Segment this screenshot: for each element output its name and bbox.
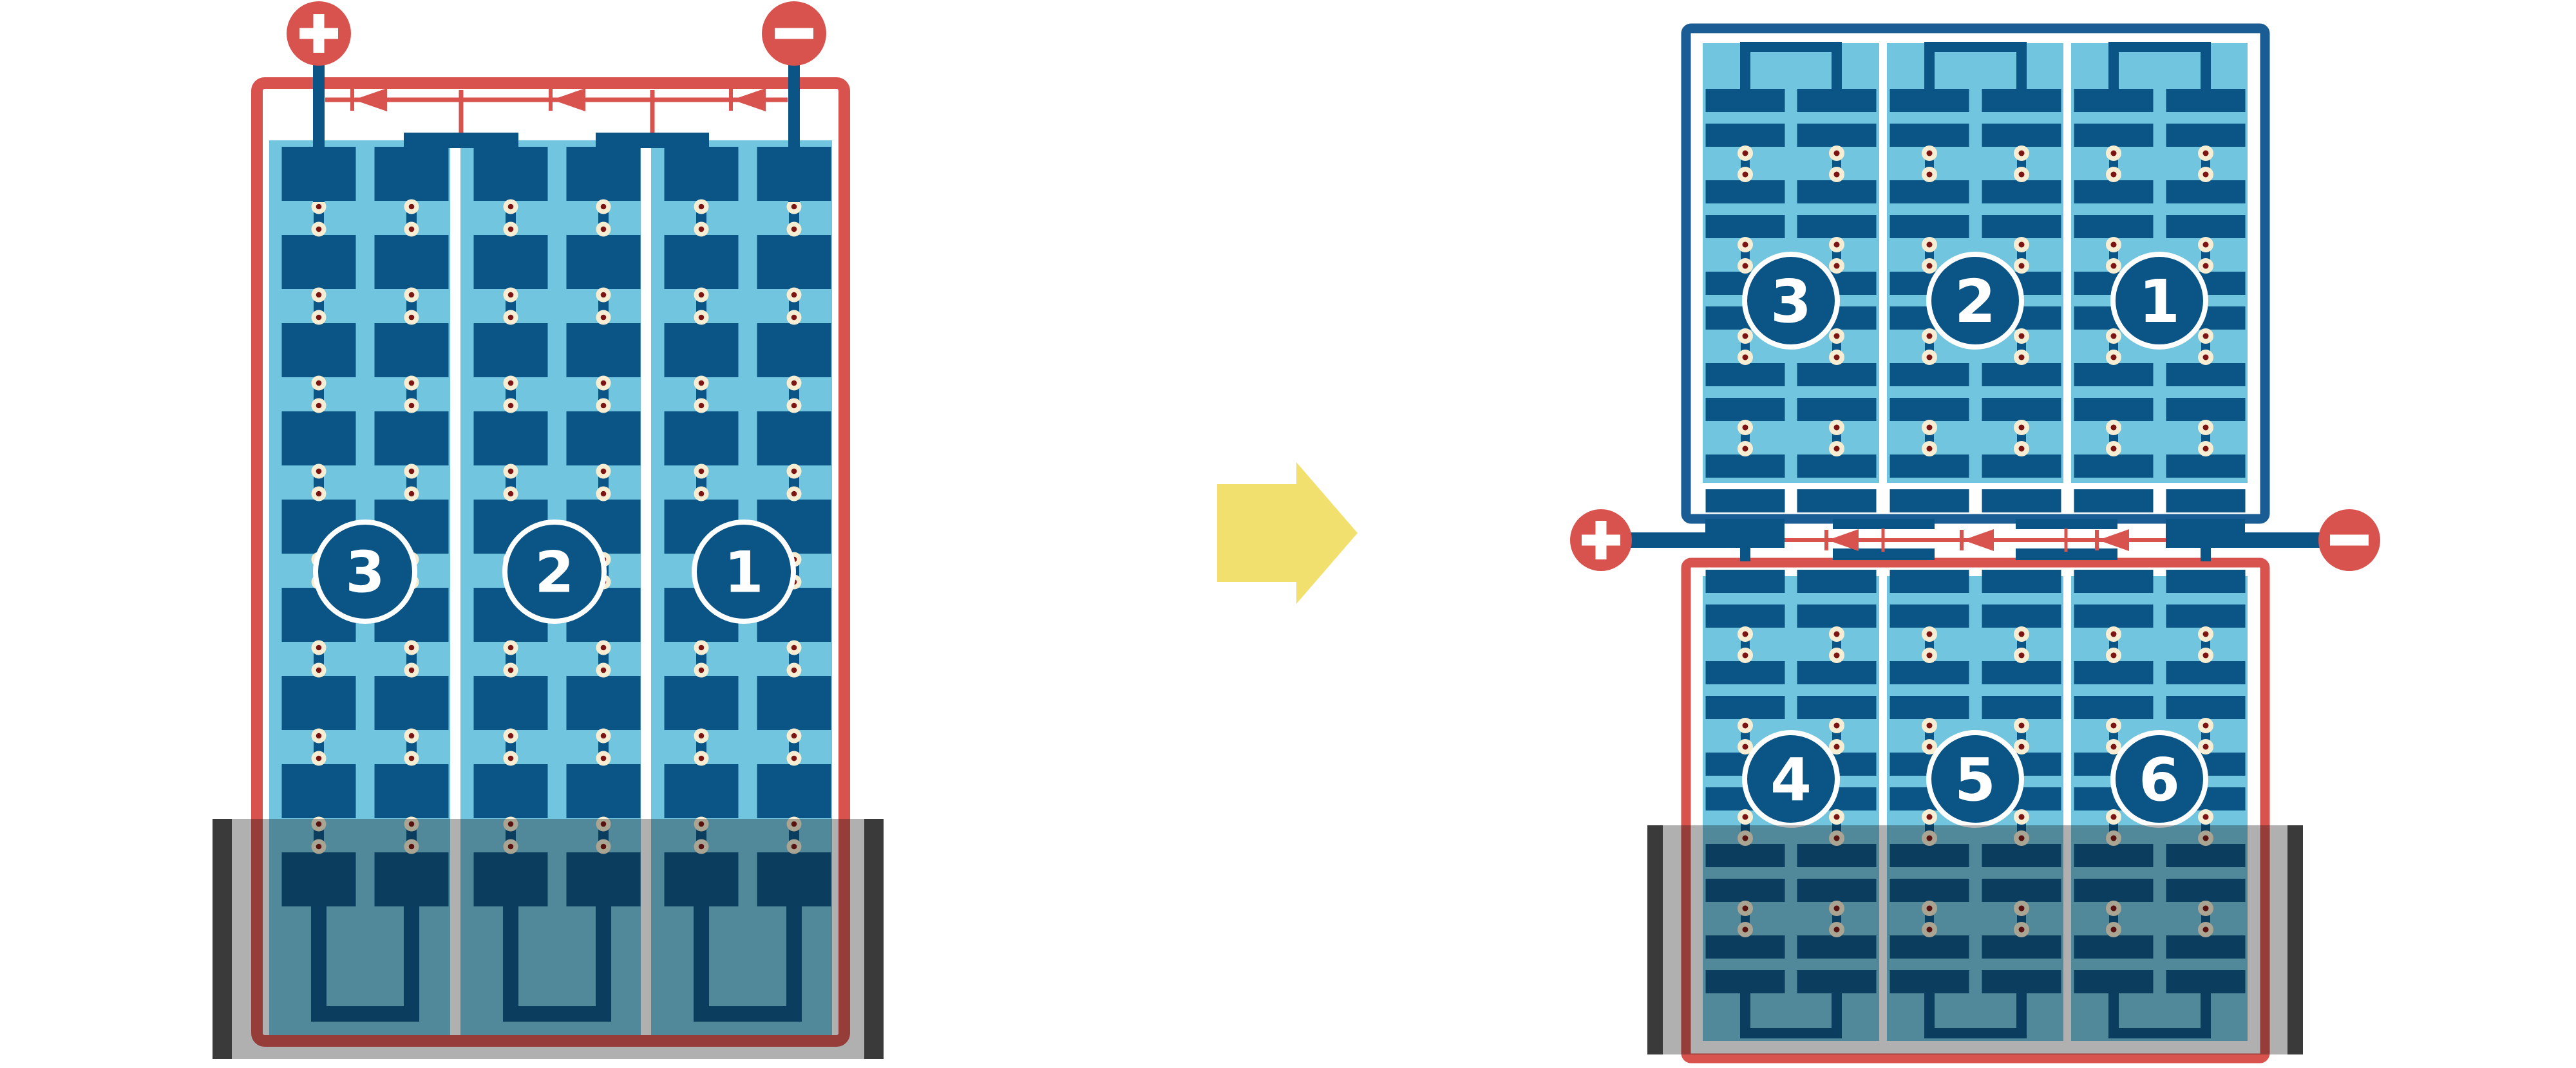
rivet-center — [1743, 446, 1748, 452]
rivet-center — [316, 227, 322, 232]
battery-plate — [665, 764, 739, 818]
rivet-center — [791, 227, 797, 232]
holder-end-cap — [1647, 825, 1663, 1054]
battery-plate — [2074, 604, 2154, 628]
rivet-center — [699, 292, 705, 298]
battery-plate — [567, 411, 641, 465]
rivet-center — [1927, 333, 1933, 339]
inter-cell-tab — [2016, 519, 2117, 529]
battery-plate — [1706, 89, 1785, 112]
rivet-center — [1834, 242, 1840, 248]
rivet-center — [791, 292, 797, 298]
battery-plate — [1706, 661, 1785, 684]
battery-plate — [2074, 398, 2154, 421]
holder-end-cap — [864, 819, 884, 1059]
battery-plate — [1890, 215, 1969, 238]
rivet-center — [699, 645, 705, 651]
rivet-center — [2203, 355, 2209, 361]
rivet-center — [508, 315, 514, 321]
rivet-center — [2019, 355, 2025, 361]
rivet-center — [791, 204, 797, 210]
rivet-center — [2019, 814, 2025, 820]
battery-plate — [2074, 454, 2154, 478]
rivet-center — [2111, 425, 2117, 431]
rivet-center — [2203, 446, 2209, 452]
left-battery: 321 — [213, 1, 884, 1059]
rivet-center — [1743, 172, 1748, 178]
rivet-center — [601, 668, 607, 673]
rivet-center — [2019, 744, 2025, 750]
rivet-center — [699, 668, 705, 673]
rivet-center — [1927, 172, 1933, 178]
battery-plate — [1982, 604, 2061, 628]
battery-plate — [665, 235, 739, 289]
sign-bar-vertical — [1596, 521, 1607, 559]
rivet-center — [1927, 446, 1933, 452]
rivet-center — [508, 668, 514, 673]
battery-plate — [2166, 215, 2246, 238]
rivet-center — [508, 733, 514, 739]
battery-plate — [2074, 661, 2154, 684]
rivet-center — [316, 204, 322, 210]
battery-plate — [474, 147, 548, 201]
battery-plate — [1982, 489, 2061, 512]
rivet-center — [2111, 151, 2117, 156]
rivet-center — [791, 403, 797, 409]
diagram-svg: 321321456 — [0, 0, 2576, 1068]
rivet-center — [409, 733, 415, 739]
rivet-center — [316, 403, 322, 409]
rivet-center — [2203, 333, 2209, 339]
cell-number-label: 2 — [1955, 267, 1996, 336]
battery-plate — [2074, 215, 2154, 238]
battery-plate — [2074, 570, 2154, 593]
battery-plate — [567, 147, 641, 201]
battery-plate — [1890, 570, 1969, 593]
battery-plate — [757, 764, 831, 818]
battery-plate — [2074, 124, 2154, 147]
battery-plate — [1982, 363, 2061, 386]
current-arrowhead-left — [354, 88, 387, 111]
rivet-center — [2111, 242, 2117, 248]
rivet-center — [699, 733, 705, 739]
battery-plate — [375, 323, 449, 377]
rivet-center — [2019, 446, 2025, 452]
post-to-top-battery — [1705, 519, 1785, 548]
transform-arrow — [1217, 462, 1358, 604]
rivet-center — [1927, 632, 1933, 637]
rivet-center — [508, 469, 514, 474]
rivet-center — [508, 380, 514, 386]
cell-number-label: 1 — [2139, 267, 2180, 336]
battery-plate — [1706, 604, 1785, 628]
rivet-center — [1834, 446, 1840, 452]
battery-plate — [1890, 124, 1969, 147]
rivet-center — [1743, 814, 1748, 820]
rivet-center — [2111, 446, 2117, 452]
holder-end-cap — [2287, 825, 2303, 1054]
sign-bar-horizontal — [2330, 535, 2369, 546]
rivet-center — [1834, 263, 1840, 269]
battery-plate — [375, 411, 449, 465]
battery-plate — [474, 764, 548, 818]
post-to-top-battery — [2166, 519, 2245, 548]
battery-plate — [1797, 398, 1877, 421]
rivet-center — [316, 380, 322, 386]
rivet-center — [2203, 814, 2209, 820]
battery-plate — [474, 411, 548, 465]
battery-plate — [375, 764, 449, 818]
rivet-center — [791, 469, 797, 474]
battery-plate — [1890, 604, 1969, 628]
rivet-center — [791, 733, 797, 739]
battery-plate — [1890, 363, 1969, 386]
cell-number-label: 6 — [2139, 745, 2180, 814]
rivet-center — [1743, 242, 1748, 248]
battery-plate — [2166, 696, 2246, 719]
minus-icon — [775, 28, 813, 39]
battery-plate — [1890, 180, 1969, 203]
current-arrowhead-left — [732, 88, 766, 111]
negative-post — [788, 63, 800, 202]
rivet-center — [2019, 425, 2025, 431]
rivet-center — [1927, 814, 1933, 820]
battery-plate — [1797, 363, 1877, 386]
rivet-center — [409, 380, 415, 386]
rivet-center — [601, 403, 607, 409]
battery-plate — [1706, 124, 1785, 147]
battery-plate — [1706, 363, 1785, 386]
rivet-center — [1927, 744, 1933, 750]
battery-plate — [2074, 89, 2154, 112]
rivet-center — [316, 668, 322, 673]
battery-plate — [282, 764, 356, 818]
rivet-center — [1834, 814, 1840, 820]
battery-plate — [1982, 180, 2061, 203]
rivet-center — [2111, 333, 2117, 339]
rivet-center — [699, 491, 705, 497]
rivet-center — [409, 756, 415, 762]
rivet-center — [508, 292, 514, 298]
rivet-center — [699, 227, 705, 232]
rivet-center — [2019, 263, 2025, 269]
battery-plate — [1797, 89, 1877, 112]
rivet-center — [409, 292, 415, 298]
rivet-center — [508, 403, 514, 409]
battery-plate — [282, 411, 356, 465]
rivet-center — [1927, 723, 1933, 729]
battery-plate — [2166, 661, 2246, 684]
positive-post — [313, 63, 325, 202]
rivet-center — [699, 756, 705, 762]
battery-plate — [665, 411, 739, 465]
rivet-center — [2019, 653, 2025, 659]
battery-plate — [375, 147, 449, 201]
battery-plate — [1890, 489, 1969, 512]
battery-plate — [665, 147, 739, 201]
battery-plate — [1982, 89, 2061, 112]
rivet-center — [2203, 723, 2209, 729]
rivet-center — [601, 491, 607, 497]
rivet-center — [508, 491, 514, 497]
battery-plate — [1982, 661, 2061, 684]
rivet-center — [508, 756, 514, 762]
inter-cell-tab — [1833, 519, 1935, 529]
rivet-center — [2111, 744, 2117, 750]
battery-plate — [567, 764, 641, 818]
series-wire — [325, 88, 788, 138]
rivet-center — [1743, 632, 1748, 637]
battery-plate — [1797, 454, 1877, 478]
arrow-head-right — [1296, 462, 1358, 604]
rivet-center — [1743, 653, 1748, 659]
rivet-center — [508, 645, 514, 651]
battery-plate — [665, 676, 739, 730]
battery-plate — [2074, 363, 2154, 386]
battery-plate — [282, 235, 356, 289]
sign-bar-vertical — [314, 14, 325, 53]
rivet-center — [1834, 653, 1840, 659]
battery-plate — [1982, 454, 2061, 478]
battery-rewiring-illustration: 321321456 — [0, 0, 2576, 1068]
rivet-center — [2111, 263, 2117, 269]
battery-plate — [757, 411, 831, 465]
rivet-center — [1927, 242, 1933, 248]
battery-plate — [757, 235, 831, 289]
rivet-center — [1834, 632, 1840, 637]
battery-plate — [2166, 489, 2246, 512]
rivet-center — [1834, 723, 1840, 729]
post-to-bottom-battery — [1740, 547, 1750, 561]
rivet-center — [699, 204, 705, 210]
rivet-center — [316, 315, 322, 321]
rivet-center — [1834, 355, 1840, 361]
battery-plate — [1797, 489, 1877, 512]
rivet-center — [1834, 172, 1840, 178]
rivet-center — [2111, 355, 2117, 361]
rivet-center — [2019, 172, 2025, 178]
battery-plate — [474, 323, 548, 377]
rivet-center — [791, 491, 797, 497]
battery-plate — [1890, 398, 1969, 421]
cell-number-label: 3 — [1770, 267, 1812, 336]
battery-plate — [1797, 696, 1877, 719]
rivet-center — [508, 227, 514, 232]
rivet-center — [409, 469, 415, 474]
battery-plate — [757, 676, 831, 730]
rivet-center — [601, 380, 607, 386]
battery-plate — [567, 323, 641, 377]
battery-plate — [1706, 570, 1785, 593]
battery-plate — [2166, 570, 2246, 593]
battery-plate — [567, 676, 641, 730]
rivet-center — [1743, 151, 1748, 156]
holder-shade — [1647, 825, 2303, 1054]
battery-plate — [2074, 696, 2154, 719]
rivet-center — [409, 668, 415, 673]
rivet-center — [2203, 263, 2209, 269]
rivet-center — [1743, 263, 1748, 269]
rivet-center — [1743, 744, 1748, 750]
rivet-center — [316, 645, 322, 651]
battery-plate — [757, 323, 831, 377]
battery-plate — [1982, 696, 2061, 719]
rivet-center — [316, 469, 322, 474]
battery-plate — [1982, 570, 2061, 593]
battery-plate — [1982, 398, 2061, 421]
battery-plate — [1982, 215, 2061, 238]
battery-plate — [375, 676, 449, 730]
rivet-center — [2203, 632, 2209, 637]
rivet-center — [2111, 653, 2117, 659]
battery-plate — [1890, 454, 1969, 478]
battery-plate — [2166, 604, 2246, 628]
rivet-center — [2019, 333, 2025, 339]
battery-plate — [2166, 89, 2246, 112]
rivet-center — [1743, 333, 1748, 339]
mounting-holder — [213, 819, 884, 1059]
rivet-center — [601, 733, 607, 739]
battery-plate — [2166, 454, 2246, 478]
rivet-center — [409, 645, 415, 651]
battery-plate — [1706, 696, 1785, 719]
rivet-center — [791, 668, 797, 673]
rivet-center — [316, 292, 322, 298]
battery-plate — [1706, 215, 1785, 238]
holder-end-cap — [213, 819, 232, 1059]
rivet-center — [601, 756, 607, 762]
rivet-center — [699, 469, 705, 474]
cell-number-label: 2 — [535, 539, 574, 606]
current-arrowhead-left — [552, 88, 585, 111]
rivet-center — [2203, 242, 2209, 248]
battery-plate — [1982, 124, 2061, 147]
rivet-center — [699, 380, 705, 386]
rivet-center — [1743, 425, 1748, 431]
rivet-center — [2019, 151, 2025, 156]
battery-plate — [1706, 454, 1785, 478]
rivet-center — [1743, 355, 1748, 361]
rivet-center — [409, 491, 415, 497]
rivet-center — [2019, 723, 2025, 729]
rivet-center — [601, 292, 607, 298]
rivet-center — [2111, 814, 2117, 820]
battery-plate — [2166, 124, 2246, 147]
rivet-center — [2203, 744, 2209, 750]
current-arrowhead-left — [2098, 529, 2129, 551]
rivet-center — [409, 315, 415, 321]
battery-plate — [1797, 124, 1877, 147]
rivet-center — [2111, 632, 2117, 637]
rivet-center — [316, 733, 322, 739]
current-arrowhead-left — [1963, 529, 1994, 551]
rivet-center — [2203, 425, 2209, 431]
battery-plate — [1706, 180, 1785, 203]
right-top-battery: 321 — [1686, 28, 2265, 529]
rivet-center — [791, 380, 797, 386]
rivet-center — [1743, 723, 1748, 729]
battery-plate — [665, 323, 739, 377]
current-arrowhead-left — [1828, 529, 1859, 551]
post-to-bottom-battery — [2201, 547, 2211, 561]
rivet-center — [1927, 653, 1933, 659]
cell-number-label: 1 — [724, 539, 763, 606]
arrow-shaft — [1217, 484, 1296, 582]
rivet-center — [316, 491, 322, 497]
rivet-center — [2111, 723, 2117, 729]
rivet-center — [1834, 425, 1840, 431]
rivet-center — [316, 756, 322, 762]
rivet-center — [791, 645, 797, 651]
battery-plate — [282, 323, 356, 377]
rivet-center — [1927, 425, 1933, 431]
rivet-center — [1927, 151, 1933, 156]
rivet-center — [2019, 242, 2025, 248]
rivet-center — [1834, 151, 1840, 156]
battery-plate — [1797, 215, 1877, 238]
rivet-center — [1927, 355, 1933, 361]
holder-shade — [213, 819, 884, 1059]
rivet-center — [2203, 172, 2209, 178]
rivet-center — [601, 204, 607, 210]
rivet-center — [791, 756, 797, 762]
rivet-center — [409, 403, 415, 409]
sign-bar-horizontal — [775, 28, 813, 39]
battery-plate — [1797, 604, 1877, 628]
cell-number-label: 4 — [1770, 745, 1812, 814]
rivet-center — [601, 469, 607, 474]
rivet-center — [2019, 632, 2025, 637]
battery-plate — [2166, 180, 2246, 203]
rivet-center — [2203, 151, 2209, 156]
battery-plate — [2074, 489, 2154, 512]
rivet-center — [1927, 263, 1933, 269]
battery-plate — [474, 676, 548, 730]
rivet-center — [601, 315, 607, 321]
battery-plate — [375, 235, 449, 289]
cell-number-label: 5 — [1955, 745, 1996, 814]
rivet-center — [601, 227, 607, 232]
cell-number-label: 3 — [345, 539, 384, 606]
battery-plate — [1797, 570, 1877, 593]
rivet-center — [2111, 172, 2117, 178]
battery-plate — [1797, 661, 1877, 684]
rivet-center — [409, 204, 415, 210]
rivet-center — [2203, 653, 2209, 659]
battery-plate — [1890, 661, 1969, 684]
rivet-center — [699, 403, 705, 409]
rivet-center — [601, 645, 607, 651]
rivet-center — [409, 227, 415, 232]
battery-plate — [474, 235, 548, 289]
rivet-center — [508, 204, 514, 210]
battery-plate — [1797, 180, 1877, 203]
battery-plate — [1890, 89, 1969, 112]
battery-plate — [2166, 398, 2246, 421]
battery-plate — [567, 235, 641, 289]
battery-plate — [2166, 363, 2246, 386]
rivet-center — [1834, 333, 1840, 339]
battery-plate — [282, 676, 356, 730]
battery-plate — [1890, 696, 1969, 719]
battery-plate — [2074, 180, 2154, 203]
rivet-center — [699, 315, 705, 321]
minus-icon — [2330, 535, 2369, 546]
mounting-holder — [1647, 825, 2303, 1054]
battery-plate — [1706, 398, 1785, 421]
battery-plate — [1706, 489, 1785, 512]
rivet-center — [1834, 744, 1840, 750]
